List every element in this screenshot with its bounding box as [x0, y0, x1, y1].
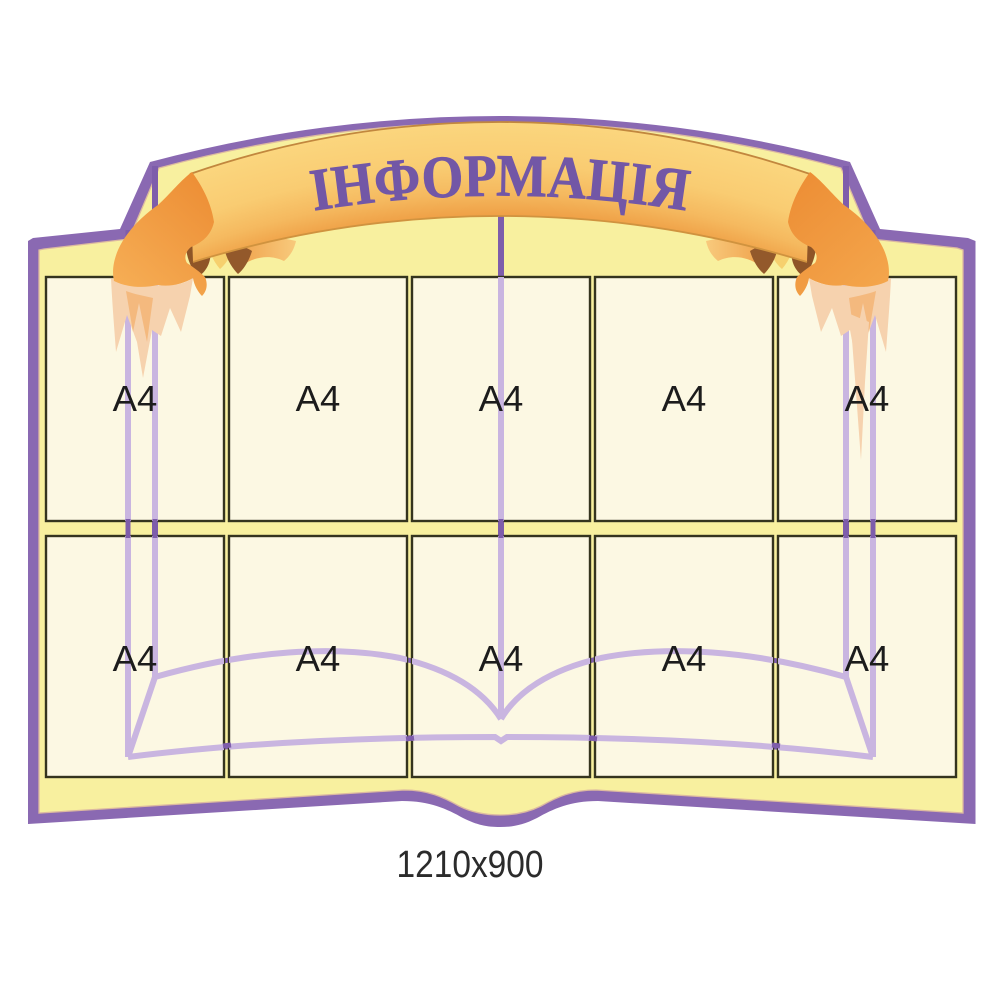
- svg-text:A4: A4: [113, 638, 158, 679]
- svg-text:A4: A4: [845, 638, 890, 679]
- svg-text:A4: A4: [296, 638, 341, 679]
- svg-text:A4: A4: [662, 638, 707, 679]
- svg-text:A4: A4: [296, 378, 341, 419]
- svg-text:A4: A4: [113, 378, 158, 419]
- svg-text:1210x900: 1210x900: [397, 844, 544, 886]
- svg-text:A4: A4: [479, 378, 524, 419]
- svg-text:A4: A4: [662, 378, 707, 419]
- svg-text:A4: A4: [479, 638, 524, 679]
- svg-text:A4: A4: [845, 378, 890, 419]
